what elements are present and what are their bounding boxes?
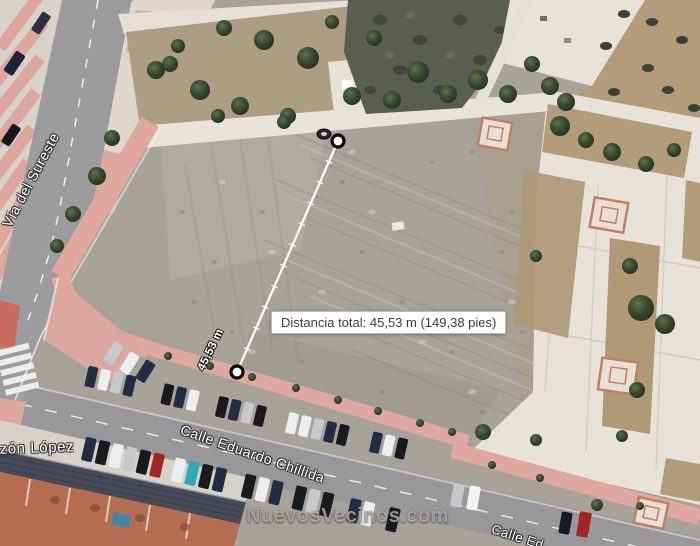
map-viewport[interactable]: Vía del Sureste Calle Eduardo Chillida r…: [0, 0, 700, 546]
distance-tooltip: Distancia total: 45,53 m (149,38 pies): [271, 311, 506, 334]
measure-endpoint-start[interactable]: [332, 135, 344, 147]
debris-panel: [392, 221, 405, 231]
measure-endpoint-end[interactable]: [231, 366, 243, 378]
satellite-map[interactable]: [0, 0, 700, 546]
